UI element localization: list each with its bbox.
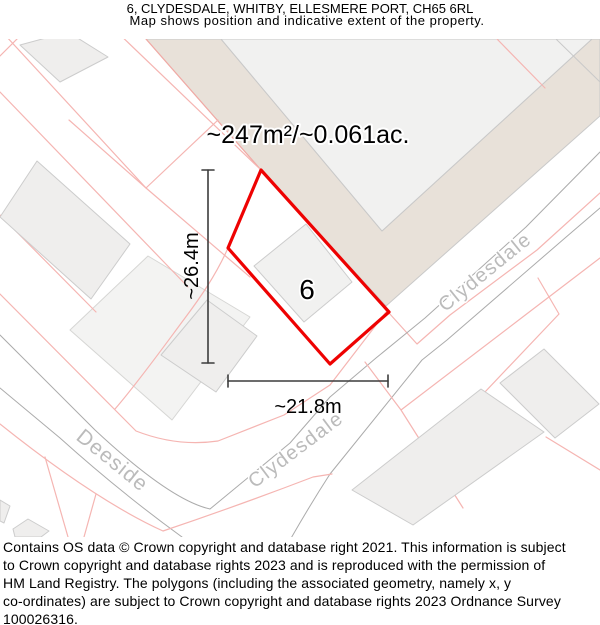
svg-text:~26.4m: ~26.4m [181, 232, 203, 299]
svg-text:6: 6 [299, 274, 315, 305]
svg-text:~247m²/~0.061ac.: ~247m²/~0.061ac. [207, 121, 410, 149]
svg-text:~21.8m: ~21.8m [274, 396, 341, 418]
